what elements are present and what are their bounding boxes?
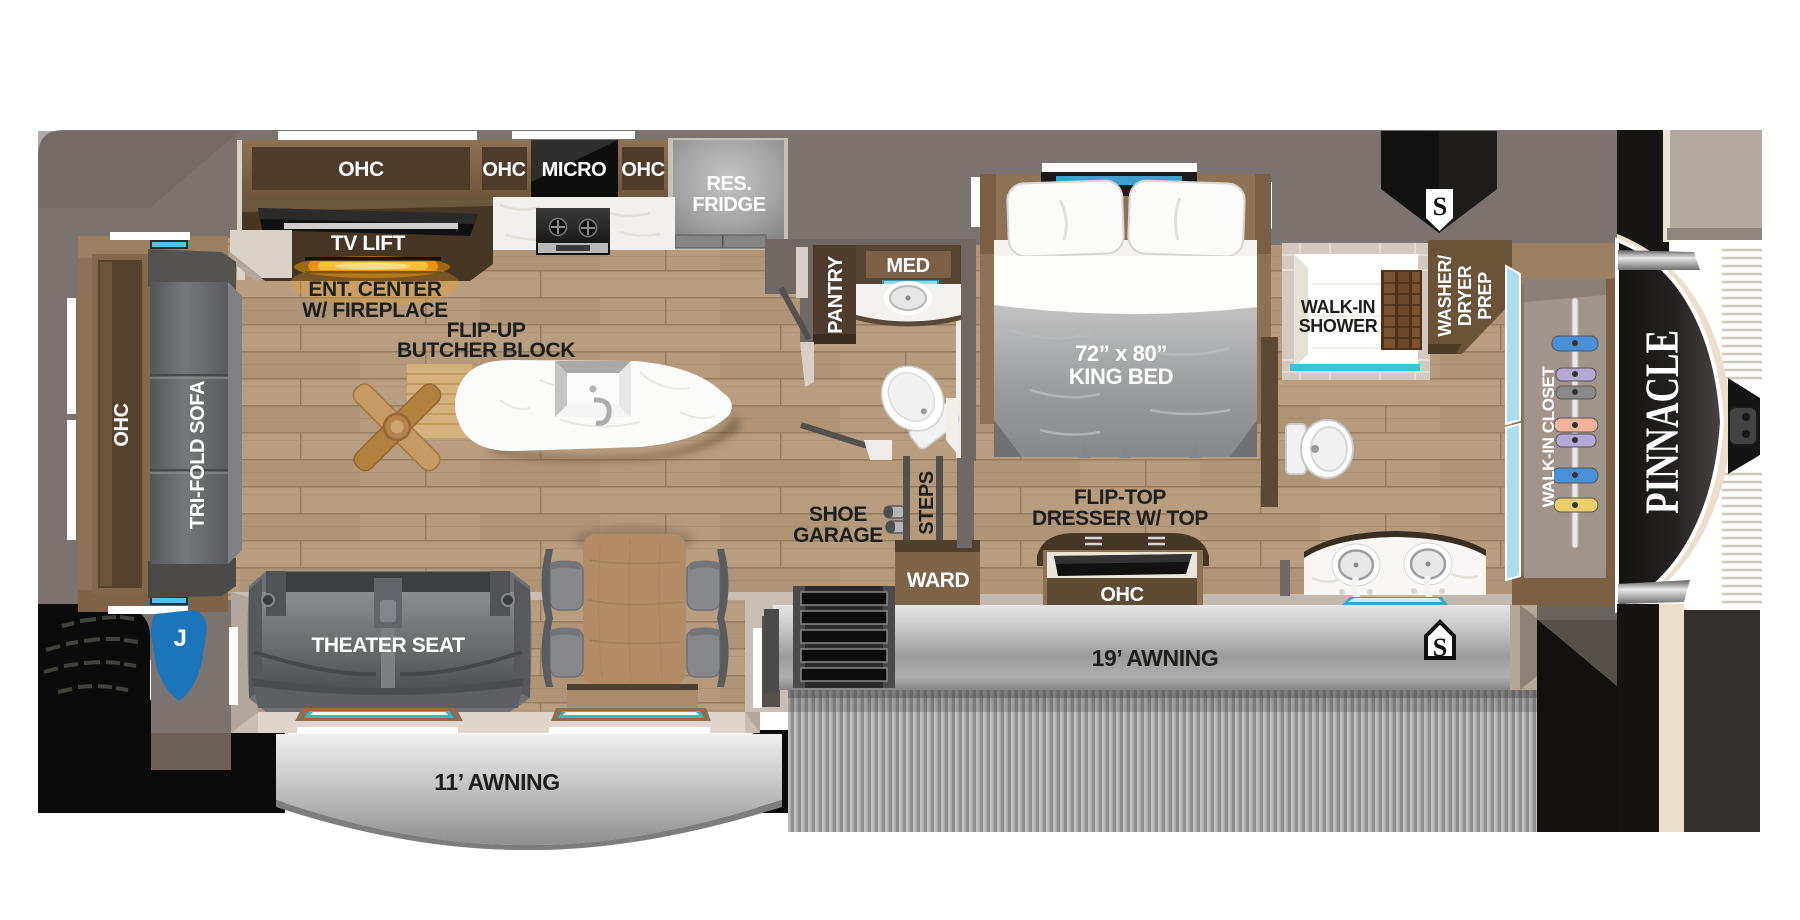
svg-text:DRESSER W/ TOP: DRESSER W/ TOP bbox=[1032, 507, 1208, 530]
svg-text:DRYER: DRYER bbox=[1455, 265, 1475, 326]
svg-text:TV LIFT: TV LIFT bbox=[331, 232, 406, 255]
svg-text:WARD: WARD bbox=[907, 569, 970, 592]
svg-text:72” x 80”: 72” x 80” bbox=[1075, 341, 1167, 366]
svg-text:MICRO: MICRO bbox=[542, 159, 607, 181]
svg-text:S: S bbox=[1433, 633, 1447, 662]
svg-text:KING BED: KING BED bbox=[1069, 364, 1173, 389]
svg-text:FRIDGE: FRIDGE bbox=[692, 194, 765, 216]
svg-text:FLIP-TOP: FLIP-TOP bbox=[1074, 486, 1166, 509]
svg-text:TRI-FOLD SOFA: TRI-FOLD SOFA bbox=[187, 381, 209, 529]
svg-text:GARAGE: GARAGE bbox=[793, 524, 883, 547]
svg-text:PANTRY: PANTRY bbox=[825, 255, 847, 334]
svg-text:RES.: RES. bbox=[706, 173, 751, 195]
svg-text:W/ FIREPLACE: W/ FIREPLACE bbox=[302, 299, 448, 322]
svg-text:S: S bbox=[1433, 192, 1447, 221]
svg-text:OHC: OHC bbox=[338, 158, 384, 181]
svg-text:MED: MED bbox=[886, 255, 929, 277]
svg-text:OHC: OHC bbox=[482, 159, 525, 181]
svg-text:WALK-IN: WALK-IN bbox=[1301, 297, 1375, 317]
svg-text:SHOE: SHOE bbox=[809, 503, 867, 526]
svg-text:STEPS: STEPS bbox=[916, 471, 938, 535]
svg-text:PREP: PREP bbox=[1475, 272, 1495, 320]
svg-text:THEATER SEAT: THEATER SEAT bbox=[311, 634, 465, 657]
svg-text:OHC: OHC bbox=[111, 403, 133, 446]
svg-text:WALK-IN CLOSET: WALK-IN CLOSET bbox=[1539, 366, 1558, 508]
svg-text:WASHER/: WASHER/ bbox=[1435, 255, 1455, 337]
svg-text:OHC: OHC bbox=[1100, 584, 1143, 606]
svg-text:PINNACLE: PINNACLE bbox=[1636, 330, 1689, 514]
svg-text:SHOWER: SHOWER bbox=[1299, 316, 1378, 336]
svg-text:11’ AWNING: 11’ AWNING bbox=[434, 769, 560, 795]
svg-text:OHC: OHC bbox=[621, 159, 664, 181]
svg-text:BUTCHER BLOCK: BUTCHER BLOCK bbox=[397, 339, 575, 362]
svg-text:19’ AWNING: 19’ AWNING bbox=[1092, 645, 1219, 671]
svg-text:J: J bbox=[174, 625, 187, 652]
svg-text:ENT. CENTER: ENT. CENTER bbox=[308, 278, 442, 301]
